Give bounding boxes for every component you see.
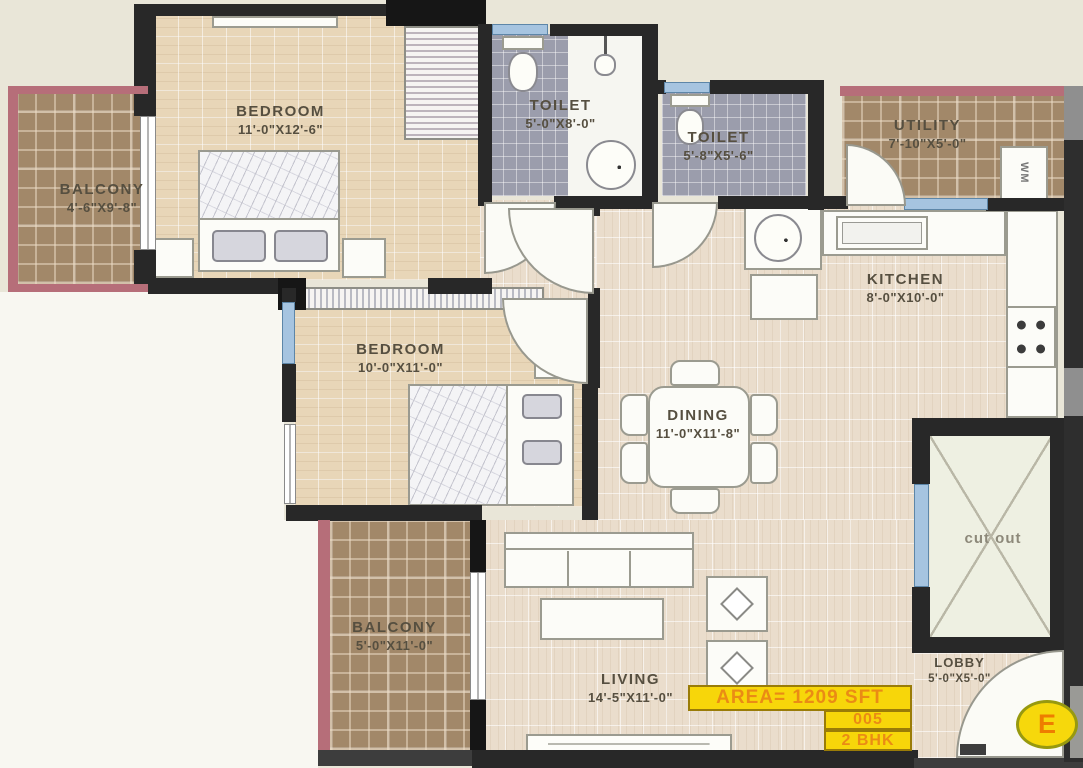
wall [808,80,824,210]
room-dims: 5'-0"X11'-0" [312,638,477,655]
stove [1006,306,1056,368]
room-dims: 5'-0"X8'-0" [498,116,623,133]
nightstand-left [150,238,194,278]
wall [282,364,296,422]
wall [588,288,600,388]
window [664,82,710,93]
label-utility: UTILITY 7'-10"X5'-0" [855,116,1000,152]
window [282,302,295,364]
washbasin-toilet-1 [586,140,636,190]
kitchen-sink-basin [842,222,922,244]
label-lobby: LOBBY 5'-0"X5'-0" [902,655,1017,687]
dining-chair-top [670,360,720,386]
coffee-table [540,598,664,640]
room-dims: 4'-6"X9'-8" [20,200,184,217]
wall [478,24,492,206]
wall [912,587,930,637]
wall [912,418,1064,436]
label-bedroom-1: BEDROOM 11'-0"X12'-6" [188,102,373,138]
label-cut-out: cut out [938,530,1048,547]
window [904,198,988,210]
shelf [212,16,338,28]
wall [642,24,658,208]
wall [582,384,598,520]
room-dims: 11'-0"X11'-8" [628,426,768,443]
sofa [504,532,694,588]
label-balcony-1: BALCONY 4'-6"X9'-8" [20,180,184,216]
wall [428,278,492,294]
unit-number-badge: 005 [824,710,912,730]
room-dims: 7'-10"X5'-0" [855,136,1000,153]
label-balcony-2: BALCONY 5'-0"X11'-0" [312,618,477,654]
label-dining: DINING 11'-0"X11'-8" [628,406,768,442]
room-name: KITCHEN [833,270,978,290]
wall [718,196,822,209]
room-dims: 11'-0"X12'-6" [188,122,373,139]
wall [286,505,482,521]
room-dims: 8'-0"X10'-0" [833,290,978,307]
railing [8,86,148,94]
door-entrance-leaf [960,744,986,755]
label-toilet-1: TOILET 5'-0"X8'-0" [498,96,623,132]
bed-1-blanket [198,150,340,220]
stove-burners [1011,311,1051,363]
room-name: TOILET [498,96,623,116]
wc-1-bowl [508,52,538,92]
room-name: LOBBY [902,655,1017,672]
railing [840,86,1064,96]
bed-2-pillow-bottom [522,440,562,465]
room-dims: 5'-0"X5'-0" [902,672,1017,687]
room-name: BEDROOM [188,102,373,122]
railing [8,86,18,292]
compass-east-marker: E [1016,700,1078,749]
wall [1064,368,1083,416]
room-name: BEDROOM [308,340,493,360]
wall [1064,86,1083,762]
railing [8,284,148,292]
label-toilet-2: TOILET 5'-8"X5'-6" [656,128,781,164]
bed-1-pillow-left [212,230,266,262]
bed-2-pillow-top [522,394,562,419]
wall [812,196,848,209]
floor-plan: WM [0,0,1083,768]
unit-type-badge: 2 BHK [824,730,912,751]
wall [318,750,472,766]
wall [550,24,656,36]
wall [912,436,930,484]
wall [470,520,486,572]
room-dims: 5'-8"X5'-6" [656,148,781,165]
dining-chair-bottom [670,488,720,514]
wall [1064,86,1083,140]
margin-left [0,292,284,768]
kitchen-sink [836,216,928,250]
label-kitchen: KITCHEN 8'-0"X10'-0" [833,270,978,306]
dining-chair-left-2 [620,442,648,484]
room-name: DINING [628,406,768,426]
label-bedroom-2: BEDROOM 10'-0"X11'-0" [308,340,493,376]
room-name: TOILET [656,128,781,148]
washing-machine: WM [1000,146,1048,200]
dining-chair-right-2 [750,442,778,484]
area-badge: AREA= 1209 SFT [688,685,912,711]
wall [146,4,392,16]
armchair-2-cushion [720,651,754,685]
wall [282,288,296,302]
room-name: BALCONY [20,180,184,200]
wall [472,750,918,768]
wardrobe-bedroom-1 [404,26,480,140]
armchair-1-cushion [720,587,754,621]
shower-stem [604,36,607,54]
armchair-1 [706,576,768,632]
wash-cabinet [750,274,818,320]
wc-1-tank [502,36,544,50]
wall [148,278,290,294]
bed-1-pillow-right [274,230,328,262]
nightstand-right [342,238,386,278]
room-name: BALCONY [312,618,477,638]
room-name: UTILITY [855,116,1000,136]
washbasin-dining [754,214,802,262]
window-slider-bedroom-2 [284,424,296,504]
window [492,24,548,35]
window [914,484,929,587]
wall [912,637,1064,653]
shower-head [594,54,616,76]
wc-2-tank [670,94,710,107]
wall [914,758,1083,768]
wall [710,80,822,94]
room-dims: 10'-0"X11'-0" [308,360,493,377]
wall [986,198,1066,211]
wall [470,700,486,752]
wall [134,4,156,116]
bed-2-blanket [408,384,508,506]
wall [386,0,486,26]
